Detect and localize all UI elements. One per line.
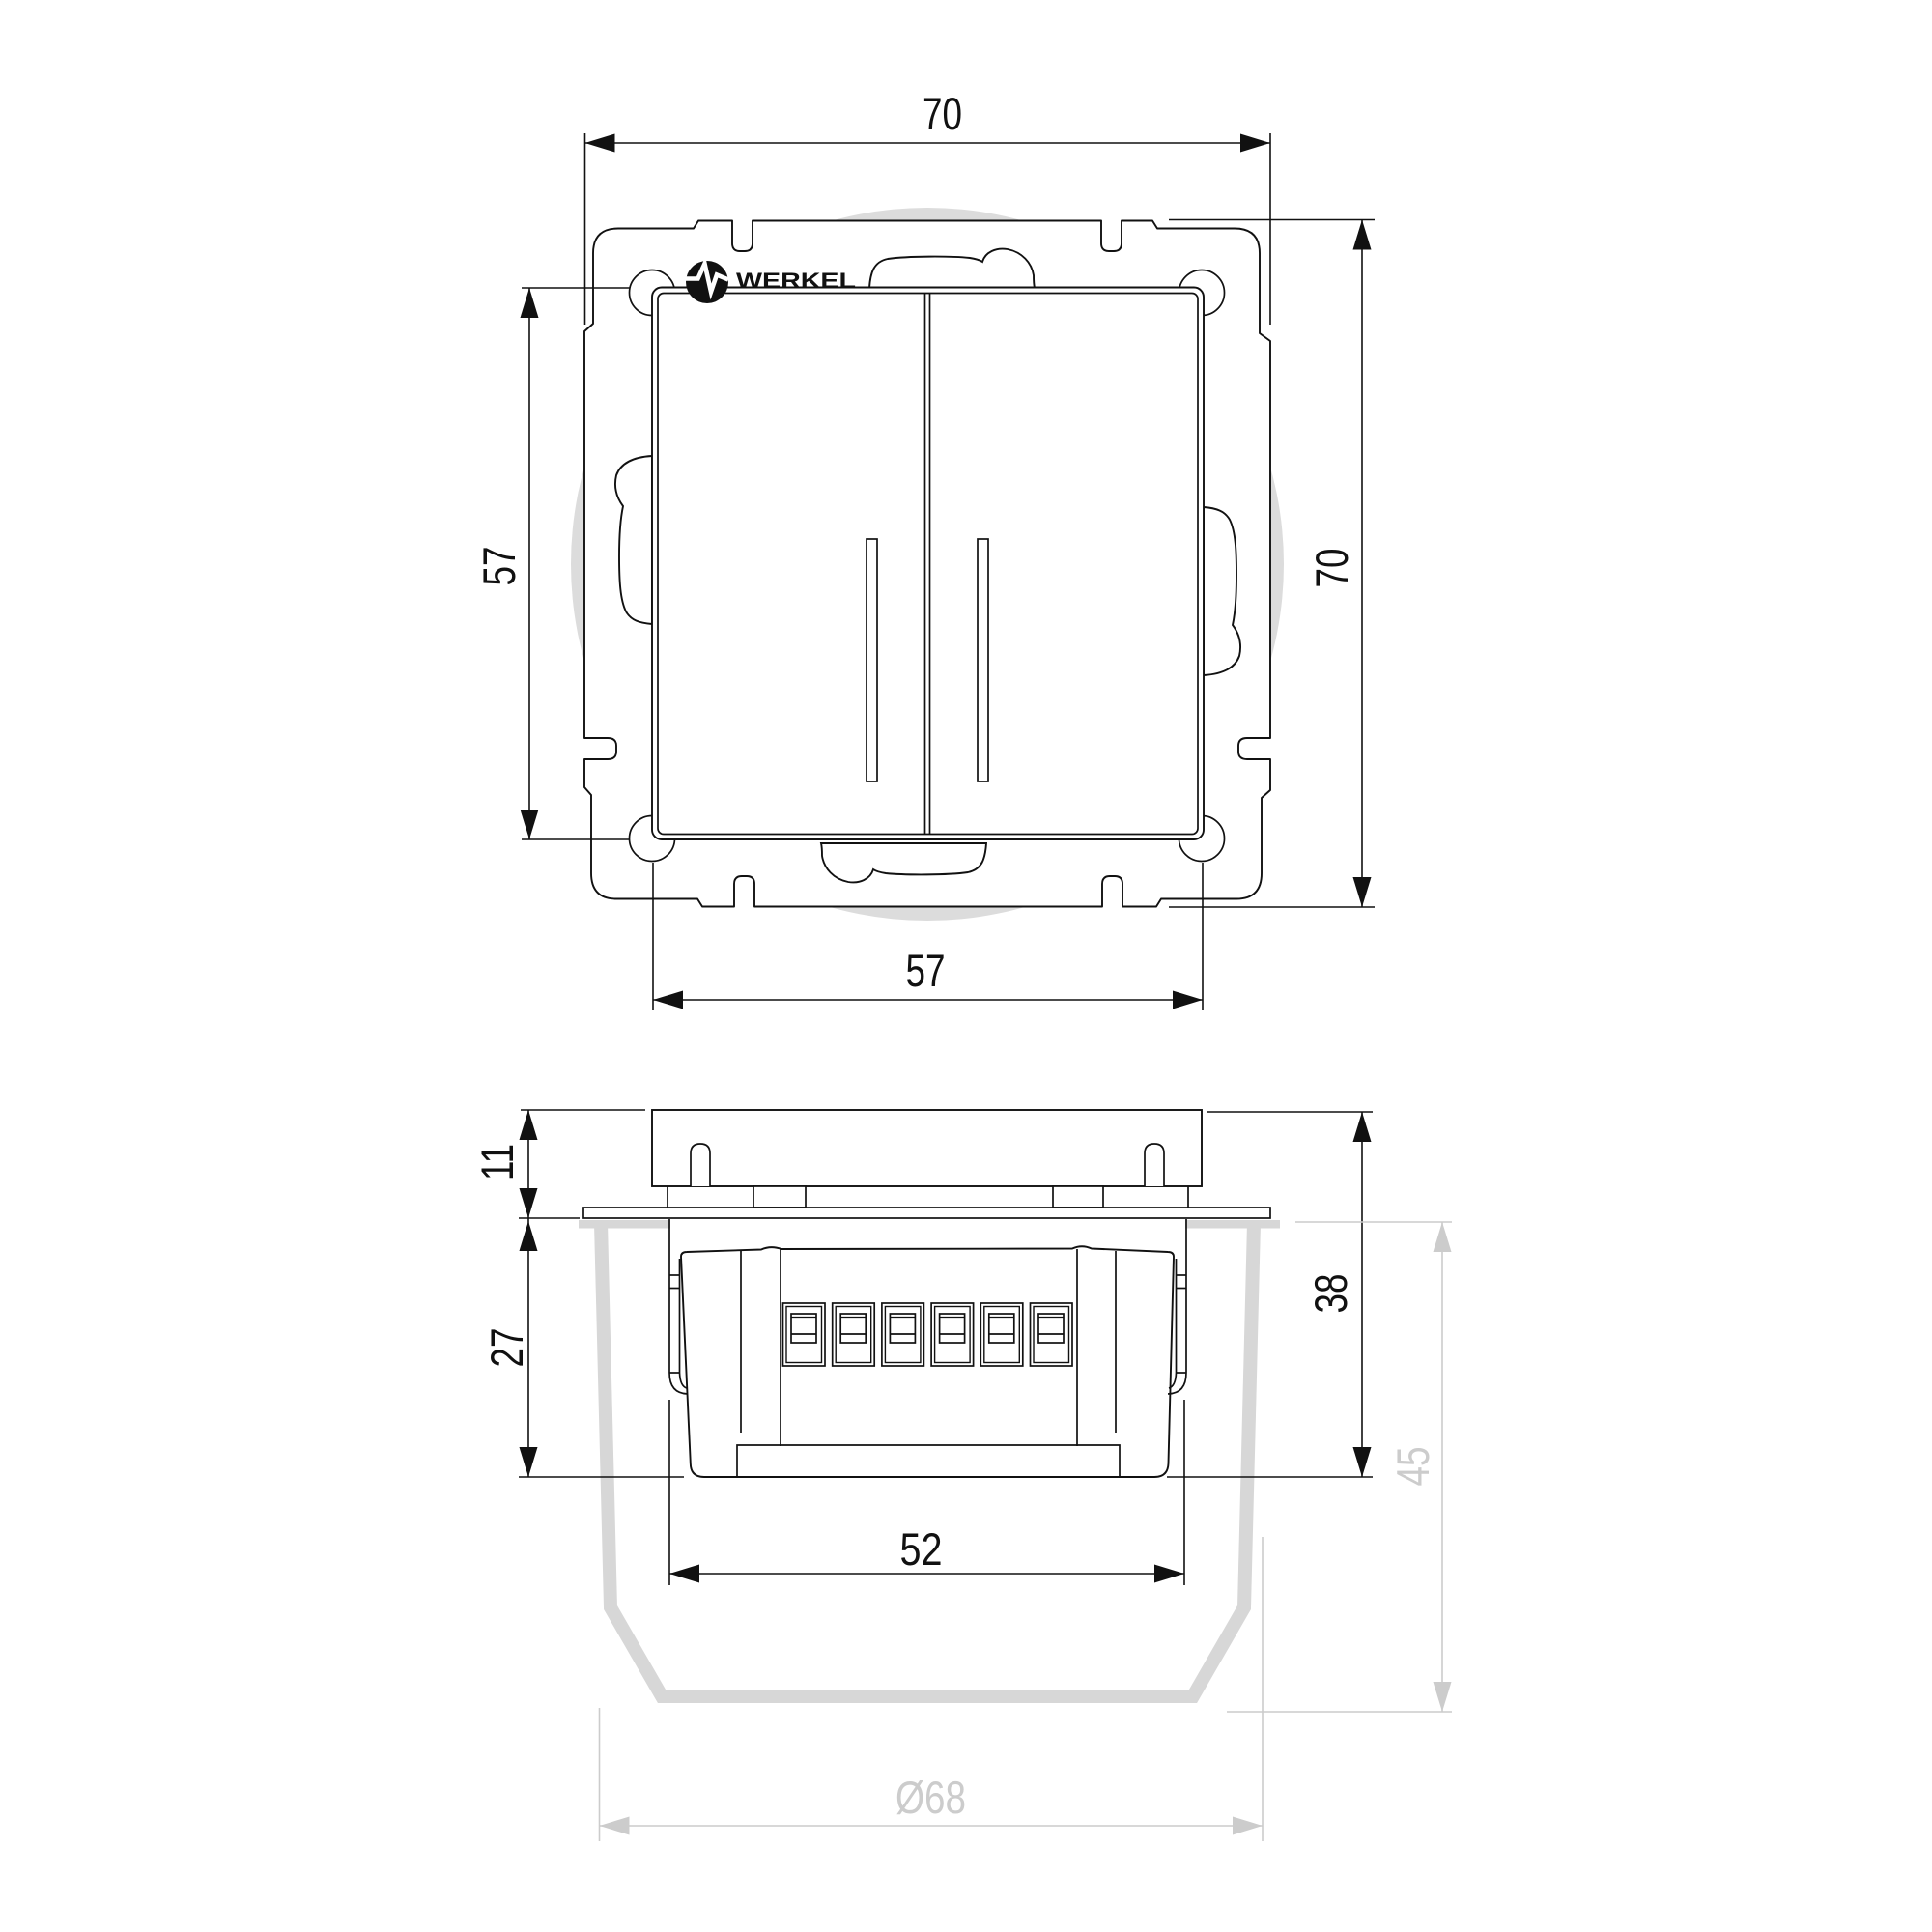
svg-text:45: 45 bbox=[1387, 1447, 1438, 1487]
svg-text:57: 57 bbox=[906, 945, 946, 996]
svg-text:WERKEL: WERKEL bbox=[736, 269, 856, 293]
svg-text:38: 38 bbox=[1305, 1274, 1356, 1314]
svg-text:70: 70 bbox=[923, 88, 962, 139]
svg-text:11: 11 bbox=[471, 1144, 523, 1180]
svg-text:57: 57 bbox=[473, 547, 525, 586]
svg-text:27: 27 bbox=[481, 1328, 532, 1368]
svg-text:70: 70 bbox=[1306, 549, 1357, 588]
svg-text:52: 52 bbox=[900, 1523, 943, 1575]
svg-text:Ø68: Ø68 bbox=[895, 1772, 966, 1823]
